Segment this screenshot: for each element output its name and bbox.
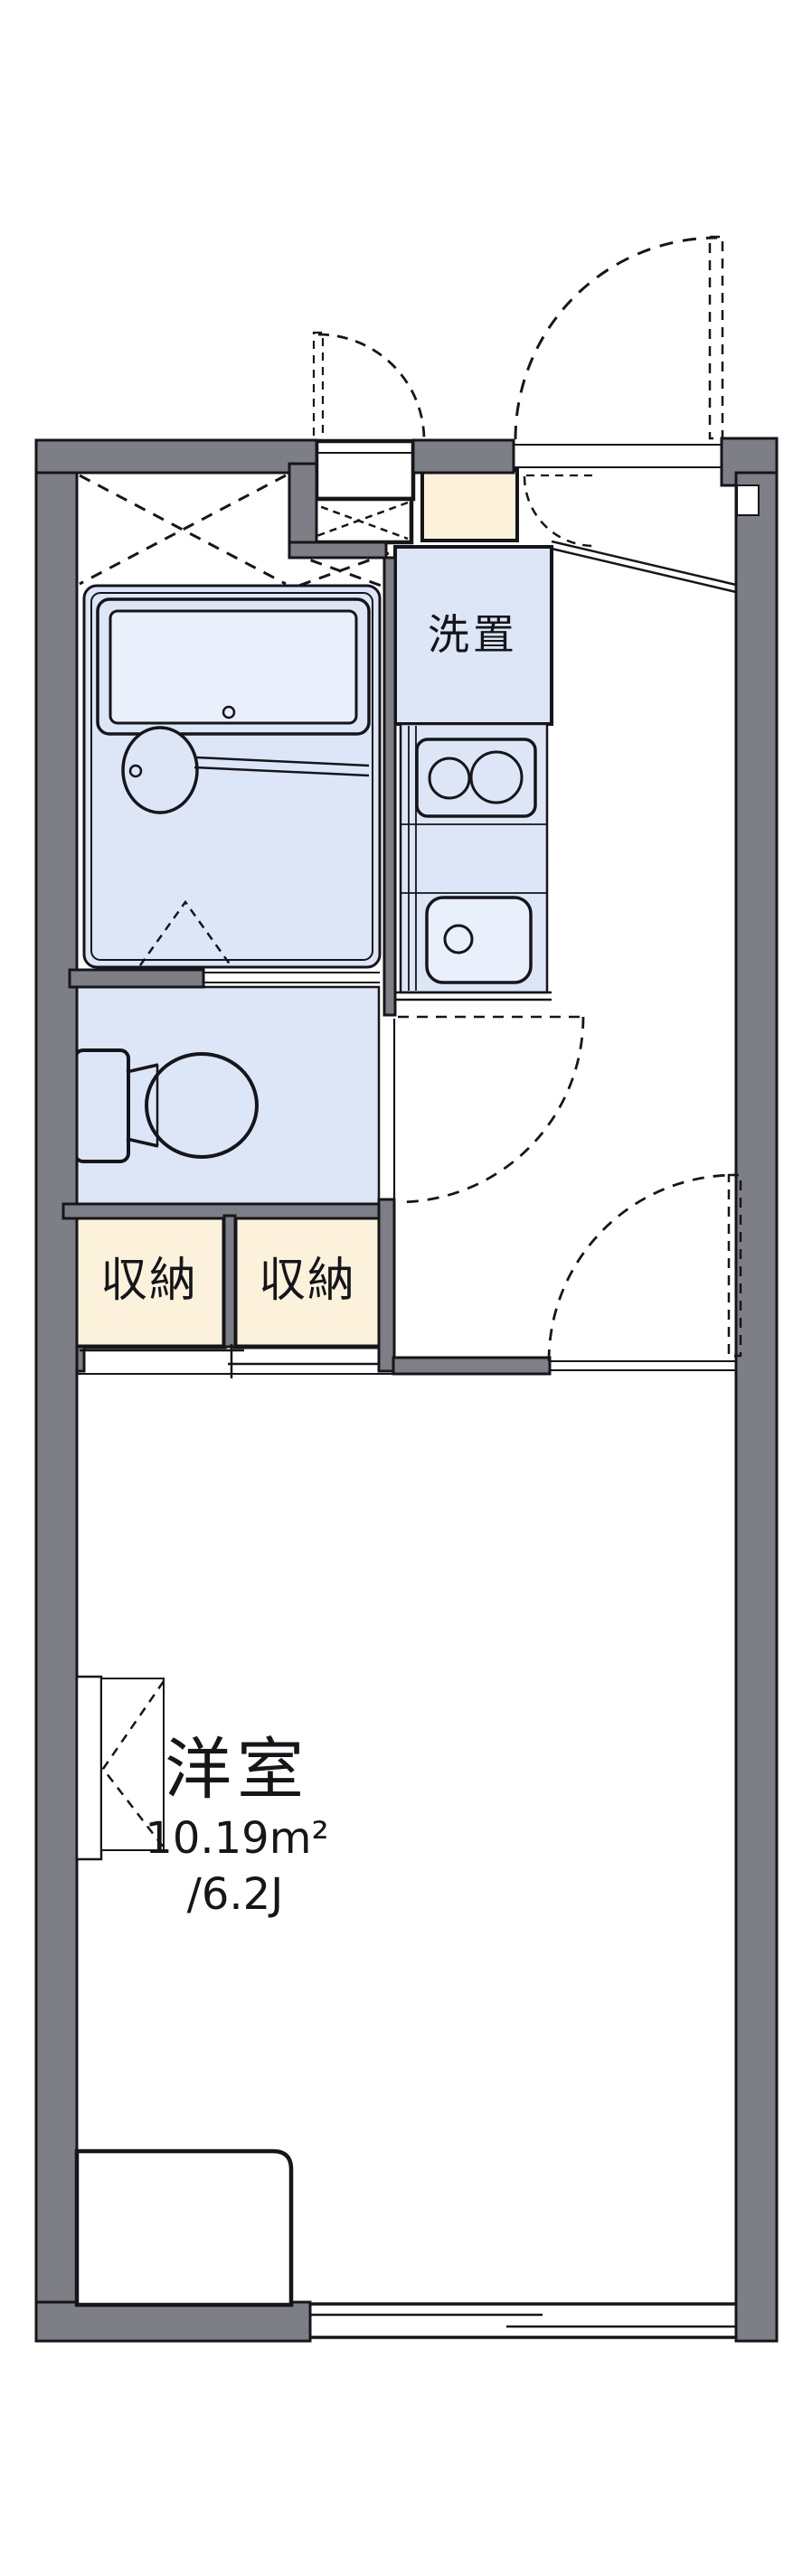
wall-bath-toilet (70, 970, 203, 987)
storage-left-label: 収納 (100, 1257, 198, 1304)
toilet-tank (75, 1050, 128, 1161)
genkan-step-line-2 (552, 549, 736, 592)
wall-bottom (36, 2302, 310, 2341)
bathtub-inner (110, 611, 356, 723)
wall-kitchen-bath (384, 558, 395, 1015)
wall-under-meter (289, 542, 386, 558)
genkan-step-line-1 (552, 541, 736, 585)
unit-bath (84, 586, 380, 967)
recess-box (316, 441, 413, 499)
service-door-leaf (314, 333, 323, 440)
bed (77, 2151, 291, 2305)
room-door-swing (549, 1175, 735, 1361)
shoe-cabinet (422, 470, 517, 541)
room-size-label: /6.2J (187, 1873, 284, 1916)
wall-right-notch (737, 485, 759, 515)
toilet-bowl (146, 1054, 257, 1157)
cabinet-door-swing (524, 476, 594, 546)
service-door-swing (318, 334, 424, 440)
kitchen-sink (427, 898, 531, 982)
bathtub-drain (223, 707, 234, 718)
entrance-door-leaf (710, 237, 722, 438)
toilet-room (75, 987, 379, 1205)
wall-hall-room (393, 1358, 550, 1374)
storage-sliding-doors (77, 1344, 393, 1378)
wall-right (736, 473, 777, 2341)
wall-top-a (36, 440, 316, 473)
room-area-label: 10.19m² (145, 1817, 328, 1860)
service-recess (306, 441, 413, 542)
wall-toilet-column (379, 1199, 394, 1371)
storage-right-label: 収納 (259, 1257, 356, 1304)
toilet-door-swing (398, 1017, 583, 1202)
wall-storage-divider (224, 1216, 235, 1347)
washbasin-faucet (130, 766, 141, 776)
room-name-label: 洋室 (165, 1736, 309, 1803)
stove (417, 739, 535, 816)
side-window-frame (77, 1677, 101, 1859)
wall-left (36, 440, 77, 2341)
entrance-door-swing (515, 238, 717, 439)
washer-space-label: 洗置 (428, 614, 518, 655)
room-bottom-window (289, 2264, 736, 2337)
floor-plan-page: 洗置 収納 収納 洋室 10.19m² /6.2J (0, 0, 812, 2576)
wall-top-b (413, 440, 514, 473)
